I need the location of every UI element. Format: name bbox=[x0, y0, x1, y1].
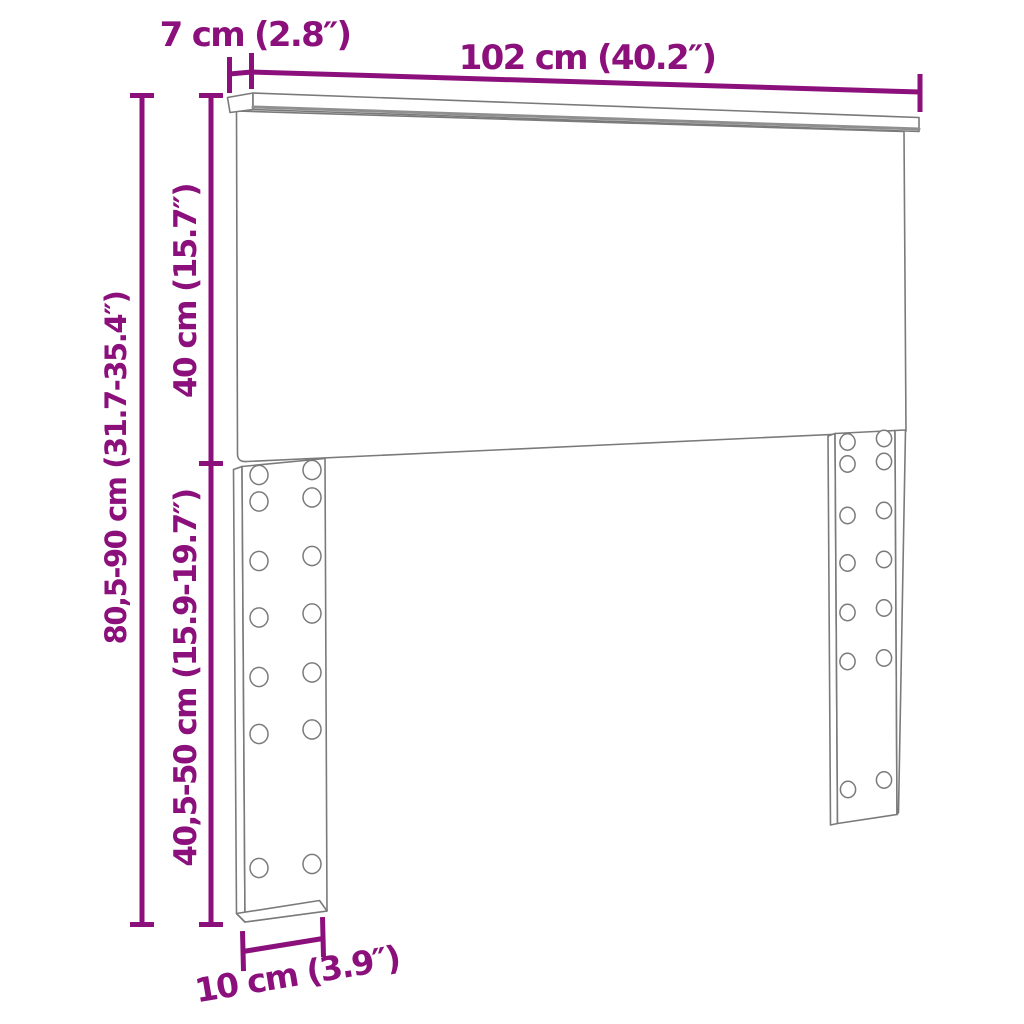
dimension-label-leg-section-height: 40,5-50 cm (15.9-19.7″) bbox=[168, 489, 204, 866]
dimension-line-overall-height bbox=[130, 96, 154, 926]
dimension-label-width: 102 cm (40.2″) bbox=[459, 38, 716, 78]
headboard-line-art bbox=[0, 0, 1024, 1024]
dimension-label-panel-height: 40 cm (15.7″) bbox=[168, 184, 204, 398]
dimension-line-top-rail-depth bbox=[230, 53, 252, 93]
right-leg-right-face bbox=[895, 430, 906, 815]
dimension-label-overall-height: 80,5-90 cm (31.7-35.4″) bbox=[99, 292, 133, 645]
dimension-diagram: 7 cm (2.8″) 102 cm (40.2″) 80,5-90 cm (3… bbox=[0, 0, 1024, 1024]
right-leg-front-face bbox=[835, 431, 897, 824]
top-rail-end-face bbox=[228, 93, 254, 113]
dimension-label-top-rail-depth: 7 cm (2.8″) bbox=[160, 15, 351, 55]
headboard-panel bbox=[237, 111, 907, 462]
left-leg-front-face bbox=[242, 459, 327, 923]
